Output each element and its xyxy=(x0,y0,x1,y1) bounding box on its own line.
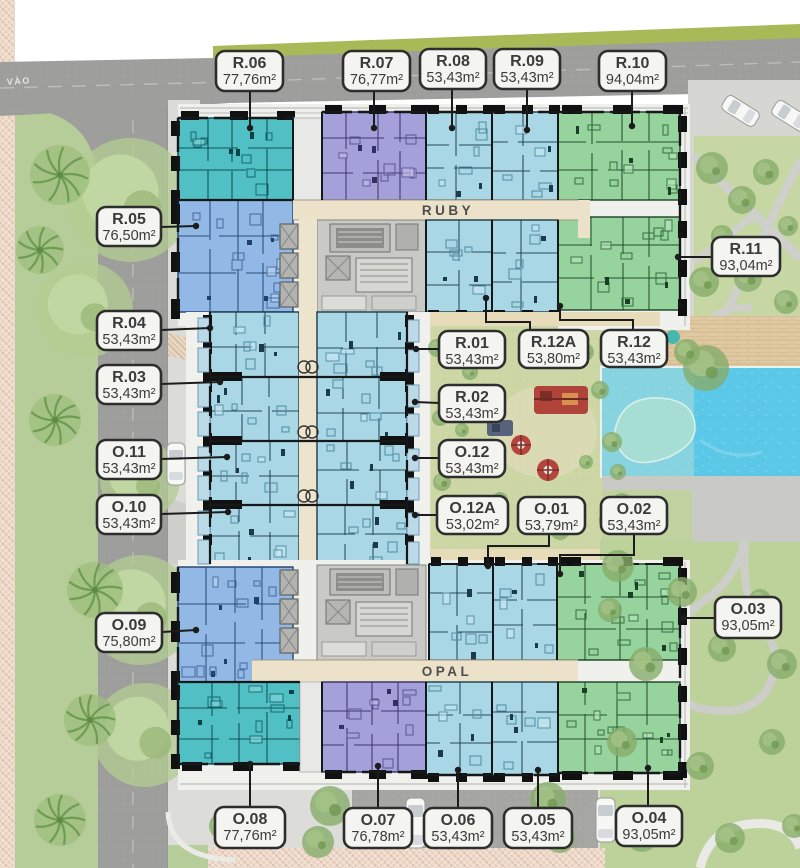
svg-text:O.06: O.06 xyxy=(441,812,476,829)
svg-text:O.09: O.09 xyxy=(112,617,147,634)
svg-text:O.08: O.08 xyxy=(233,811,268,828)
svg-text:76,77m²: 76,77m² xyxy=(350,72,403,88)
svg-text:OPAL: OPAL xyxy=(422,664,473,679)
svg-text:77,76m²: 77,76m² xyxy=(223,828,276,844)
svg-text:O.12A: O.12A xyxy=(449,500,496,517)
svg-text:R.05: R.05 xyxy=(112,211,146,228)
svg-text:R.01: R.01 xyxy=(455,335,489,352)
svg-text:R.07: R.07 xyxy=(360,55,394,72)
svg-text:53,80m²: 53,80m² xyxy=(527,351,580,367)
svg-text:53,43m²: 53,43m² xyxy=(607,518,660,534)
svg-text:53,02m²: 53,02m² xyxy=(446,517,499,533)
svg-text:O.01: O.01 xyxy=(534,501,569,518)
svg-text:93,05m²: 93,05m² xyxy=(721,618,774,634)
svg-text:O.12: O.12 xyxy=(455,444,490,461)
svg-text:53,43m²: 53,43m² xyxy=(102,386,155,402)
svg-text:53,43m²: 53,43m² xyxy=(431,829,484,845)
svg-text:RUBY: RUBY xyxy=(422,203,474,218)
svg-text:O.04: O.04 xyxy=(632,810,667,827)
svg-text:O.07: O.07 xyxy=(361,812,396,829)
svg-text:R.09: R.09 xyxy=(510,53,544,70)
svg-text:53,43m²: 53,43m² xyxy=(511,829,564,845)
svg-text:O.11: O.11 xyxy=(112,444,146,461)
svg-text:R.04: R.04 xyxy=(112,315,146,332)
svg-text:76,50m²: 76,50m² xyxy=(102,228,155,244)
svg-text:53,43m²: 53,43m² xyxy=(426,70,479,86)
svg-text:77,76m²: 77,76m² xyxy=(223,72,276,88)
svg-text:53,43m²: 53,43m² xyxy=(102,461,155,477)
svg-text:R.11: R.11 xyxy=(730,241,763,258)
svg-text:53,43m²: 53,43m² xyxy=(445,461,498,477)
svg-text:94,04m²: 94,04m² xyxy=(606,72,659,88)
svg-text:76,78m²: 76,78m² xyxy=(351,829,404,845)
svg-text:53,43m²: 53,43m² xyxy=(102,332,155,348)
svg-text:R.03: R.03 xyxy=(112,369,146,386)
svg-text:53,79m²: 53,79m² xyxy=(525,518,578,534)
svg-text:53,43m²: 53,43m² xyxy=(102,516,155,532)
svg-text:O.03: O.03 xyxy=(731,601,766,618)
svg-text:O.05: O.05 xyxy=(521,812,556,829)
svg-text:VÀO: VÀO xyxy=(6,75,31,87)
svg-text:O.02: O.02 xyxy=(617,501,652,518)
svg-text:R.12A: R.12A xyxy=(531,334,577,351)
svg-text:R.10: R.10 xyxy=(616,55,650,72)
svg-text:53,43m²: 53,43m² xyxy=(445,406,498,422)
svg-text:53,43m²: 53,43m² xyxy=(500,70,553,86)
svg-text:53,43m²: 53,43m² xyxy=(445,352,498,368)
svg-text:93,05m²: 93,05m² xyxy=(622,827,675,843)
svg-text:75,80m²: 75,80m² xyxy=(102,634,155,650)
svg-text:53,43m²: 53,43m² xyxy=(607,351,660,367)
svg-text:93,04m²: 93,04m² xyxy=(719,258,772,274)
svg-text:O.10: O.10 xyxy=(112,499,147,516)
svg-text:R.12: R.12 xyxy=(617,334,651,351)
svg-text:R.08: R.08 xyxy=(436,53,470,70)
svg-text:R.02: R.02 xyxy=(455,389,489,406)
svg-text:R.06: R.06 xyxy=(233,55,267,72)
